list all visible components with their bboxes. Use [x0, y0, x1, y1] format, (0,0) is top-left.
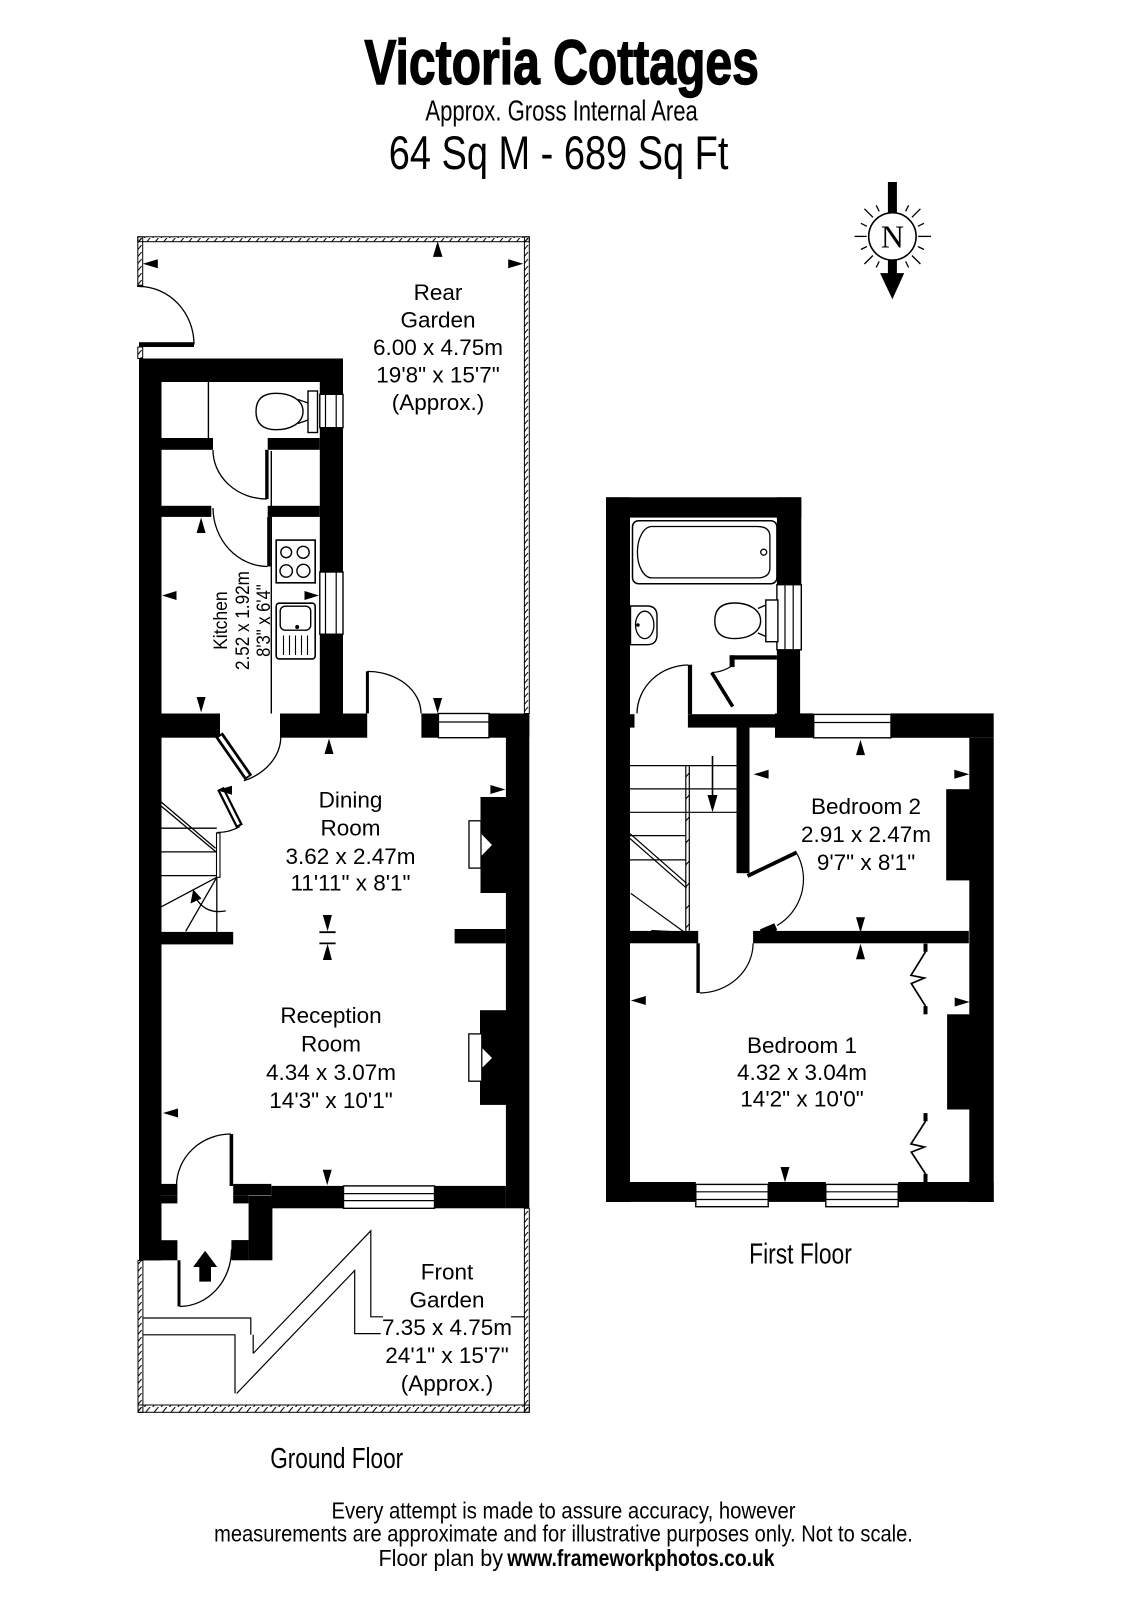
svg-text:14'3" x 10'1": 14'3" x 10'1": [269, 1088, 392, 1113]
svg-text:www.frameworkphotos.co.uk: www.frameworkphotos.co.uk: [506, 1545, 775, 1571]
svg-text:Victoria Cottages: Victoria Cottages: [364, 28, 759, 98]
svg-text:6.00 x 4.75m: 6.00 x 4.75m: [373, 335, 503, 360]
svg-text:Room: Room: [301, 1032, 361, 1057]
svg-text:8'3" x 6'4": 8'3" x 6'4": [253, 584, 275, 657]
svg-text:Garden: Garden: [409, 1288, 484, 1313]
svg-text:N: N: [881, 219, 904, 255]
svg-text:Bedroom 2: Bedroom 2: [811, 794, 921, 819]
svg-text:2.52 x 1.92m: 2.52 x 1.92m: [232, 571, 254, 670]
svg-text:Garden: Garden: [400, 308, 475, 333]
svg-text:19'8" x 15'7": 19'8" x 15'7": [376, 363, 499, 388]
svg-text:14'2" x 10'0": 14'2" x 10'0": [740, 1087, 863, 1112]
svg-text:3.62 x 2.47m: 3.62 x 2.47m: [285, 844, 415, 869]
svg-text:Room: Room: [320, 815, 380, 840]
svg-text:9'7" x 8'1": 9'7" x 8'1": [817, 850, 915, 875]
svg-text:Bedroom 1: Bedroom 1: [747, 1033, 857, 1058]
svg-text:Front: Front: [421, 1260, 474, 1285]
svg-text:Floor plan by: Floor plan by: [379, 1545, 504, 1571]
svg-text:(Approx.): (Approx.): [401, 1371, 494, 1396]
svg-text:4.32 x 3.04m: 4.32 x 3.04m: [737, 1060, 867, 1085]
svg-text:11'11" x 8'1": 11'11" x 8'1": [290, 871, 410, 896]
svg-text:Kitchen: Kitchen: [210, 591, 232, 650]
svg-text:2.91 x 2.47m: 2.91 x 2.47m: [801, 822, 931, 847]
svg-text:7.35 x 4.75m: 7.35 x 4.75m: [382, 1315, 512, 1340]
svg-text:Dining: Dining: [319, 788, 383, 813]
svg-text:24'1" x 15'7": 24'1" x 15'7": [385, 1343, 508, 1368]
svg-text:64 Sq M - 689 Sq Ft: 64 Sq M - 689 Sq Ft: [389, 126, 729, 179]
svg-text:Approx. Gross Internal Area: Approx. Gross Internal Area: [425, 95, 698, 127]
svg-text:Reception: Reception: [280, 1003, 381, 1028]
svg-text:First Floor: First Floor: [749, 1238, 852, 1270]
svg-text:4.34 x 3.07m: 4.34 x 3.07m: [266, 1060, 396, 1085]
svg-text:(Approx.): (Approx.): [392, 390, 485, 415]
svg-text:Rear: Rear: [414, 280, 463, 305]
svg-text:measurements are approximate a: measurements are approximate and for ill…: [214, 1520, 913, 1546]
svg-text:Ground Floor: Ground Floor: [270, 1442, 403, 1474]
